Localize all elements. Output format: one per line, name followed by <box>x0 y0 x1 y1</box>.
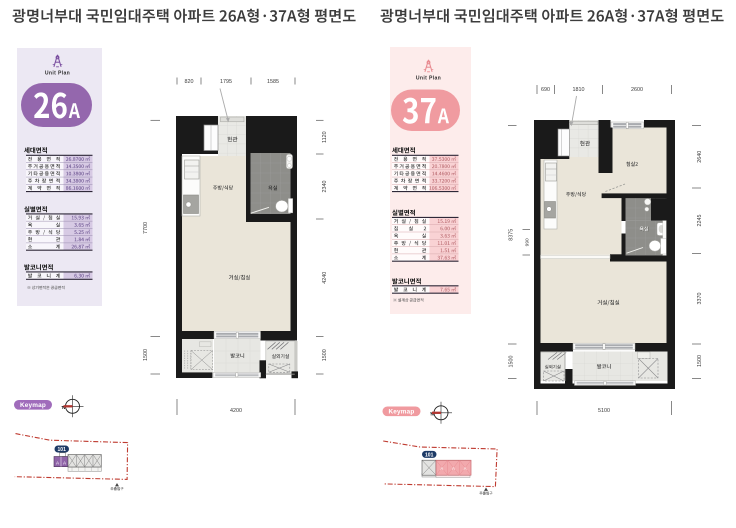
svg-text:1500: 1500 <box>143 349 149 361</box>
svg-text:2340: 2340 <box>322 181 328 193</box>
svg-text:1500: 1500 <box>697 355 703 367</box>
svg-text:A: A <box>464 466 467 471</box>
svg-text:1795: 1795 <box>220 79 232 85</box>
svg-text:101: 101 <box>425 452 434 458</box>
svg-text:101: 101 <box>58 447 67 453</box>
svg-text:2245: 2245 <box>697 215 703 227</box>
svg-text:Keymap: Keymap <box>20 402 46 409</box>
svg-text:1500: 1500 <box>509 356 515 368</box>
svg-text:8375: 8375 <box>509 229 515 241</box>
svg-text:4200: 4200 <box>230 408 242 414</box>
svg-text:Unit Plan: Unit Plan <box>416 75 441 81</box>
svg-text:4240: 4240 <box>322 272 328 284</box>
svg-text:Keymap: Keymap <box>388 409 414 416</box>
svg-text:3370: 3370 <box>697 293 703 305</box>
svg-text:7700: 7700 <box>143 222 149 234</box>
svg-text:5100: 5100 <box>598 408 610 414</box>
svg-text:2640: 2640 <box>697 151 703 163</box>
svg-text:A: A <box>452 466 455 471</box>
svg-text:990: 990 <box>524 238 530 246</box>
svg-text:1500: 1500 <box>322 349 328 361</box>
svg-text:A: A <box>440 466 443 471</box>
svg-text:1120: 1120 <box>322 131 328 143</box>
svg-text:Unit Plan: Unit Plan <box>45 70 70 76</box>
svg-text:1585: 1585 <box>267 79 279 85</box>
svg-text:2600: 2600 <box>631 87 643 93</box>
svg-text:1810: 1810 <box>573 87 585 93</box>
svg-text:820: 820 <box>185 79 194 85</box>
svg-text:690: 690 <box>541 87 550 93</box>
